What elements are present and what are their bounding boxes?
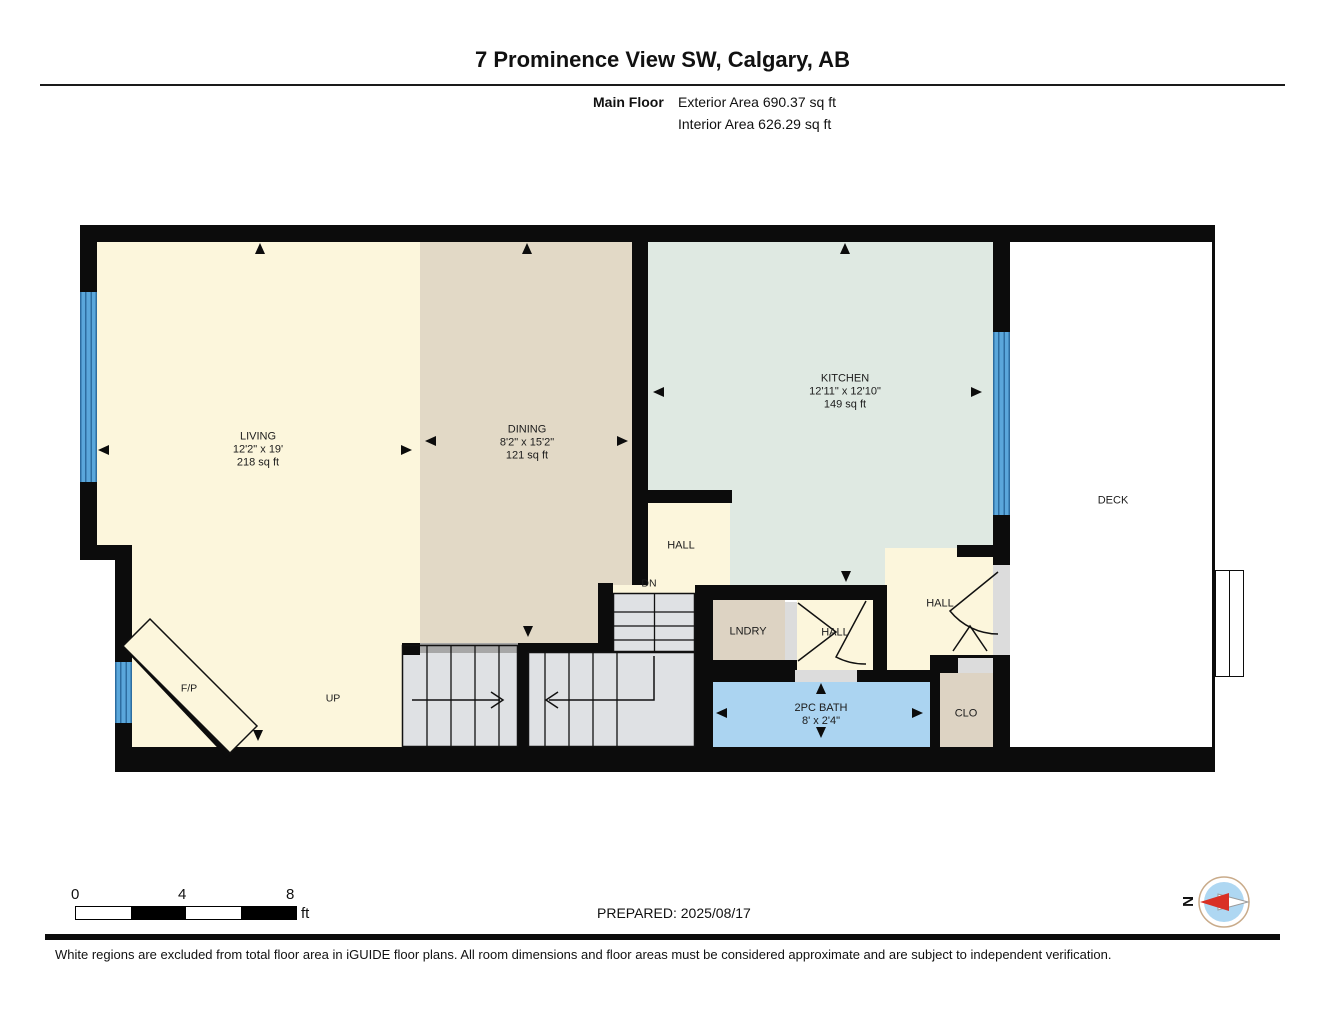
dim-arrow-up-icon <box>816 683 826 694</box>
stairs-down-label: DN <box>641 578 656 591</box>
dim-arrow-down-icon <box>523 626 533 637</box>
dim-arrow-down-icon <box>841 571 851 582</box>
room-label-laundry: LNDRY <box>729 626 766 639</box>
stairs-down-direction-arrow <box>546 656 654 708</box>
plan-linework <box>0 0 1325 1024</box>
room-label-living: LIVING 12'2" x 19' 218 sq ft <box>233 431 283 470</box>
room-dims: 12'2" x 19' <box>233 444 283 457</box>
room-label-dining: DINING 8'2" x 15'2" 121 sq ft <box>500 424 554 463</box>
dim-arrow-down-icon <box>816 727 826 738</box>
scale-tick-4: 4 <box>178 886 186 903</box>
dim-arrow-up-icon <box>840 243 850 254</box>
room-label-hall-upper: HALL <box>667 540 695 553</box>
room-label-hall-right: HALL <box>926 598 954 611</box>
room-label-deck: DECK <box>1098 495 1129 508</box>
room-dims: 12'11" x 12'10" <box>809 386 881 399</box>
door-swing-closet <box>953 626 987 651</box>
footer-rule <box>45 934 1280 940</box>
room-name: 2PC BATH <box>795 702 848 715</box>
north-label: N <box>1180 896 1197 907</box>
stairs-up-label: UP <box>326 693 341 706</box>
fireplace-label: F/P <box>181 683 197 696</box>
floor-plan-sheet: 7 Prominence View SW, Calgary, AB Main F… <box>0 0 1325 1024</box>
dim-arrow-right-icon <box>617 436 628 446</box>
dim-arrow-left-icon <box>425 436 436 446</box>
room-area: 149 sq ft <box>809 399 881 412</box>
scale-unit: ft <box>301 905 309 922</box>
scale-bar <box>75 906 297 920</box>
room-label-hall-center: HALL <box>821 627 849 640</box>
scale-segment <box>186 907 241 919</box>
disclaimer-text: White regions are excluded from total fl… <box>55 947 1111 962</box>
stairs-up-risers <box>427 646 499 746</box>
stairs-up-outline <box>403 646 518 747</box>
scale-segment <box>131 907 186 919</box>
room-name: DINING <box>500 424 554 437</box>
scale-tick-0: 0 <box>71 886 79 903</box>
prepared-date-label: PREPARED: 2025/08/17 <box>597 905 751 921</box>
dim-arrow-down-icon <box>253 730 263 741</box>
dim-arrow-right-icon <box>401 445 412 455</box>
dim-arrow-right-icon <box>971 387 982 397</box>
dim-arrow-left-icon <box>98 445 109 455</box>
scale-tick-8: 8 <box>286 886 294 903</box>
dim-arrow-left-icon <box>716 708 727 718</box>
door-swing-deck <box>950 572 998 634</box>
room-label-bath: 2PC BATH 8' x 2'4" <box>795 702 848 728</box>
dim-arrow-left-icon <box>653 387 664 397</box>
dim-arrow-up-icon <box>522 243 532 254</box>
room-area: 121 sq ft <box>500 450 554 463</box>
room-name: KITCHEN <box>809 373 881 386</box>
scale-segment <box>76 907 131 919</box>
dim-arrow-up-icon <box>255 243 265 254</box>
stairs-up-direction-arrow <box>412 692 503 708</box>
compass <box>1196 874 1256 934</box>
room-dims: 8' x 2'4" <box>795 715 848 728</box>
room-label-closet: CLO <box>955 708 978 721</box>
room-dims: 8'2" x 15'2" <box>500 437 554 450</box>
room-label-kitchen: KITCHEN 12'11" x 12'10" 149 sq ft <box>809 373 881 412</box>
room-name: LIVING <box>233 431 283 444</box>
scale-segment <box>241 907 296 919</box>
dim-arrow-right-icon <box>912 708 923 718</box>
stairs-down-treads <box>613 593 695 652</box>
room-area: 218 sq ft <box>233 457 283 470</box>
